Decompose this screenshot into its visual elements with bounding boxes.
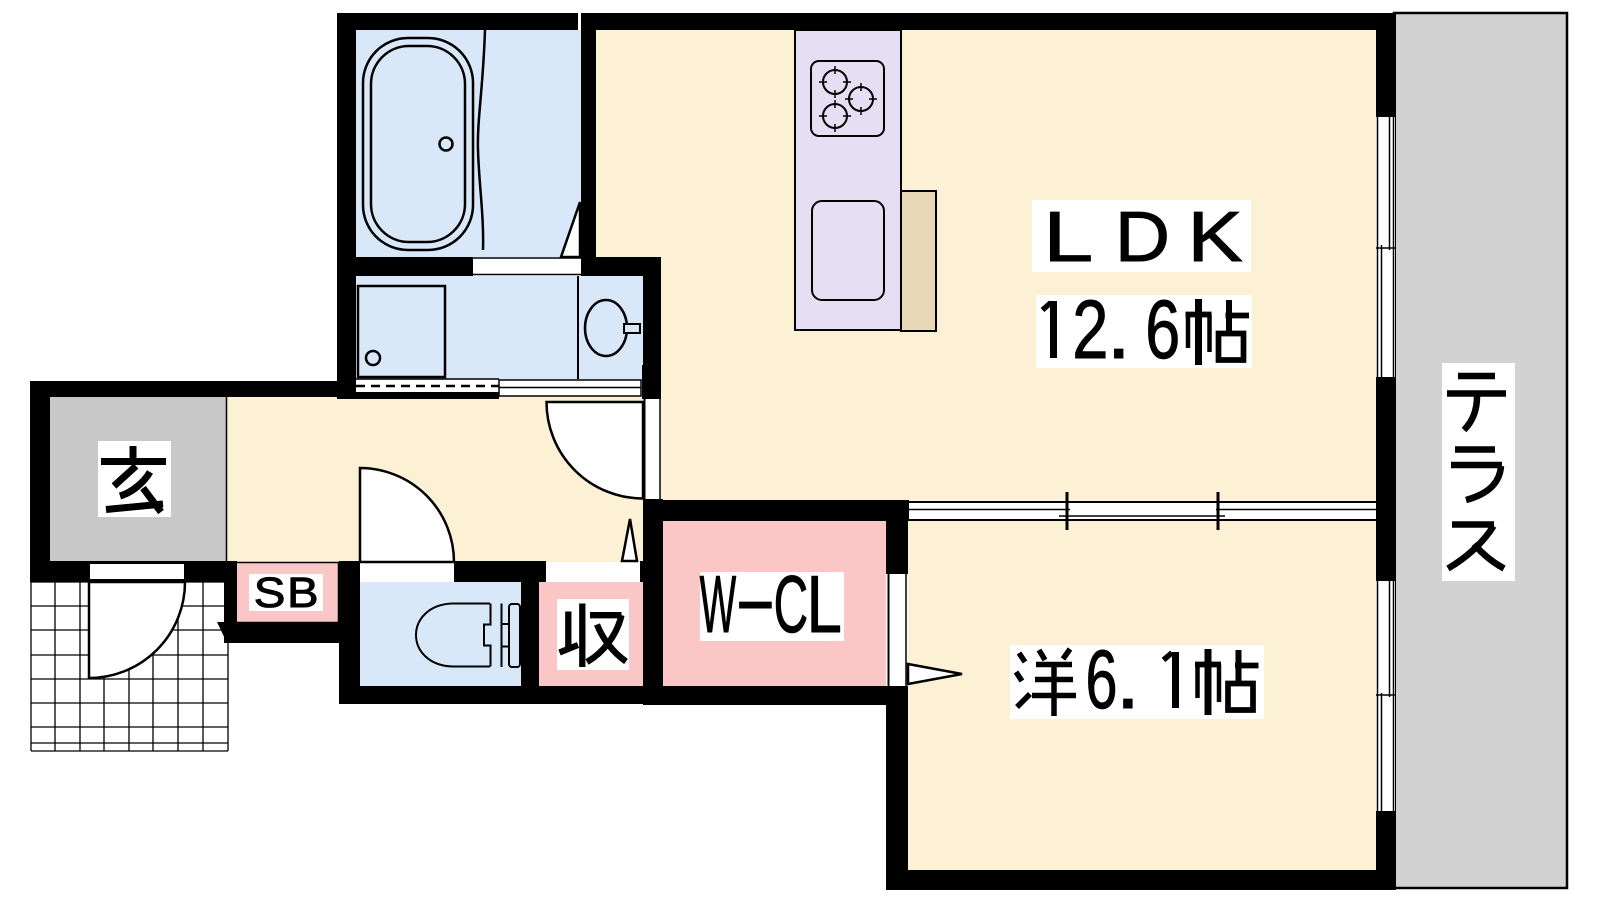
svg-text:C: C bbox=[774, 560, 809, 650]
svg-text:.: . bbox=[1107, 283, 1131, 376]
svg-text:K: K bbox=[1188, 198, 1243, 277]
svg-text:W: W bbox=[700, 560, 737, 650]
svg-text:B: B bbox=[287, 570, 318, 617]
svg-text:S: S bbox=[254, 570, 286, 617]
svg-text:2: 2 bbox=[1072, 283, 1108, 376]
svg-text:L: L bbox=[807, 560, 842, 650]
svg-text:D: D bbox=[1115, 198, 1170, 277]
svg-text:6: 6 bbox=[1086, 633, 1118, 726]
svg-text:6: 6 bbox=[1145, 283, 1180, 376]
svg-text:−: − bbox=[736, 560, 774, 650]
svg-text:L: L bbox=[1043, 198, 1093, 277]
svg-text:.: . bbox=[1116, 633, 1141, 726]
